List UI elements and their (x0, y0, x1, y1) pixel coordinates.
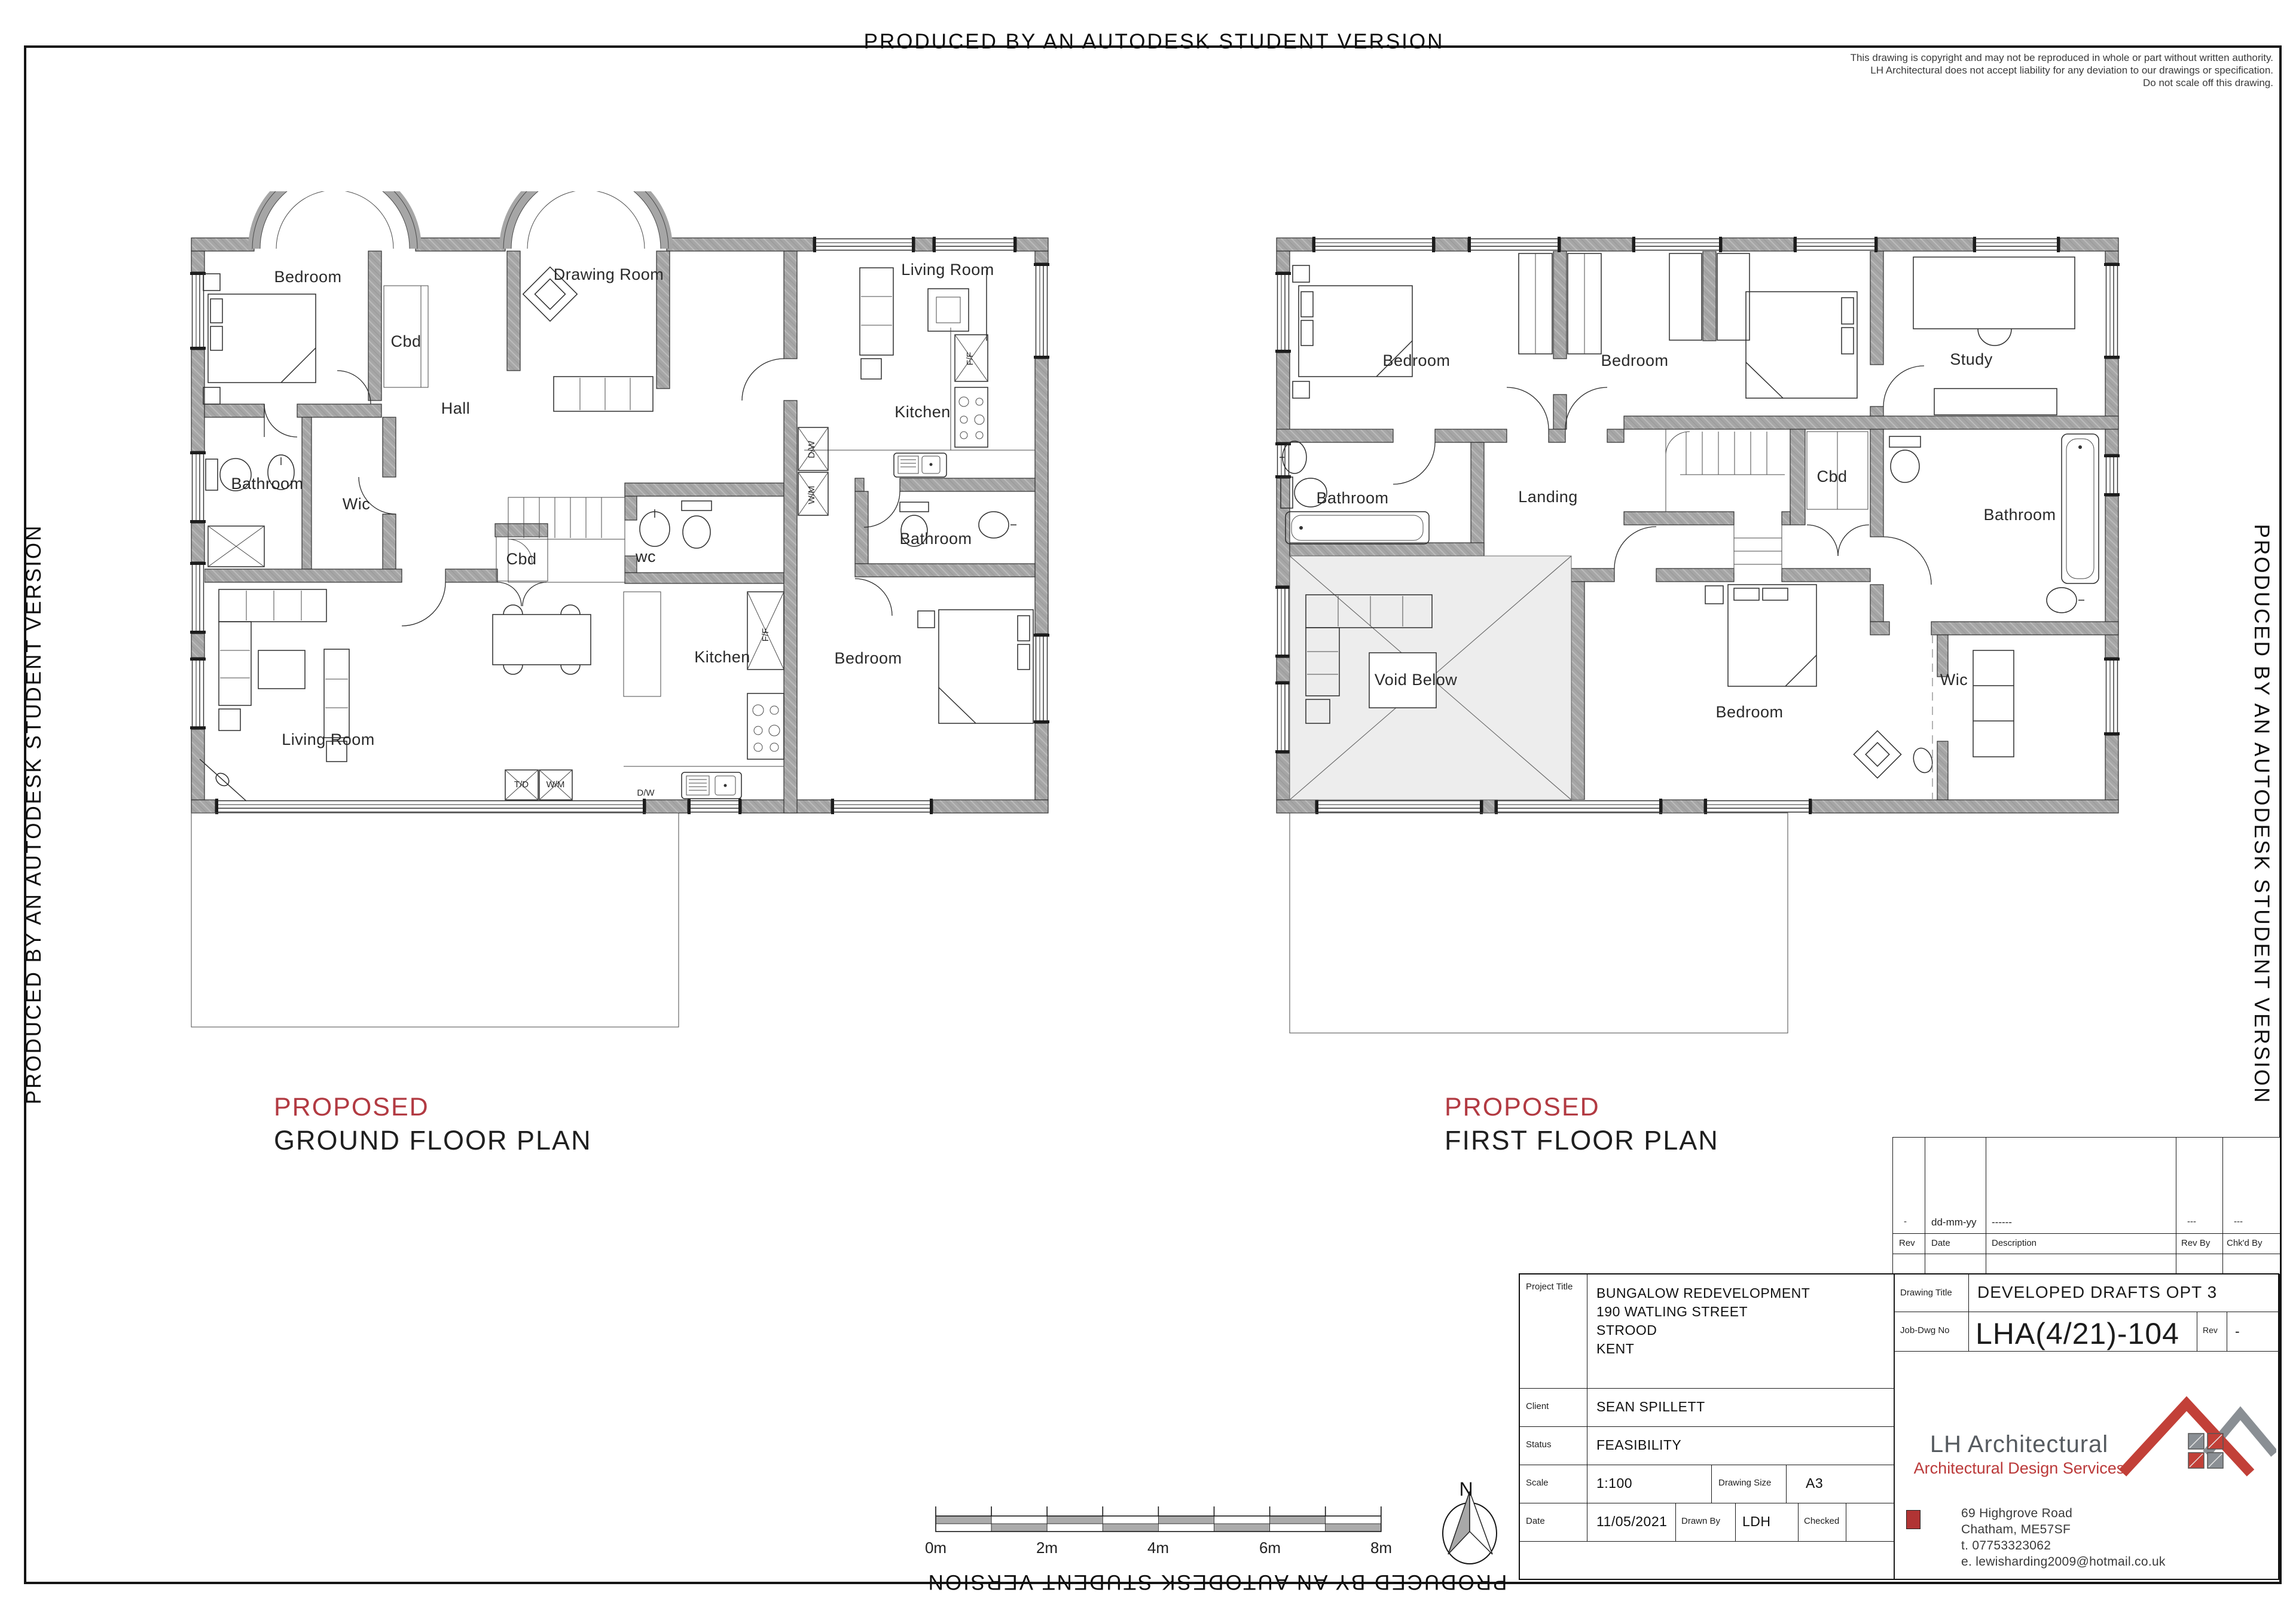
checked-label: Checked (1804, 1516, 1839, 1526)
title-block: Project Title BUNGALOW REDEVELOPMENT 190… (1519, 1273, 2279, 1580)
rev-entry-date: dd-mm-yy (1931, 1217, 1977, 1228)
ground-patio-outline (191, 813, 679, 1027)
first-terrace-outline (1290, 813, 1788, 1033)
drawing-title-value: DEVELOPED DRAFTS OPT 3 (1977, 1283, 2217, 1302)
appliance-label-dw: D/W (807, 441, 817, 459)
appliance-label-ff: F/F (965, 352, 975, 366)
scale-label-4m: 4m (1147, 1539, 1169, 1557)
company-address-line: Chatham, ME57SF (1961, 1521, 2166, 1538)
company-logo-roof-icon (2118, 1394, 2276, 1493)
room-label-bathroom: Bathroom (1316, 489, 1388, 507)
ground-walls (191, 238, 1048, 813)
room-label-living-room: Living Room (282, 730, 375, 748)
first-floor-plan-drawing: Bedroom Bedroom Study Bathroom Landing C… (1256, 191, 2152, 1040)
bay-window-arch (252, 191, 417, 249)
address-bullet (1906, 1510, 1921, 1529)
rev-value: - (2235, 1324, 2240, 1340)
room-label-wc: wc (635, 548, 656, 566)
drawing-title-label: Drawing Title (1900, 1288, 1952, 1298)
room-label-bathroom: Bathroom (231, 475, 303, 493)
rev-header-description: Description (1992, 1238, 2037, 1248)
room-label-bedroom: Bedroom (1601, 352, 1668, 369)
room-label-void-below: Void Below (1375, 671, 1458, 689)
autodesk-banner-top: PRODUCED BY AN AUTODESK STUDENT VERSION (843, 30, 1465, 54)
date-label: Date (1526, 1516, 1545, 1526)
rev-header-date: Date (1931, 1238, 1950, 1248)
room-label-bedroom: Bedroom (274, 268, 341, 286)
room-label-hall: Hall (441, 399, 471, 417)
rev-header-chkd-by: Chk'd By (2227, 1238, 2263, 1248)
rev-header-rev-by: Rev By (2181, 1238, 2210, 1248)
disclaimer-line: LH Architectural does not accept liabili… (1782, 64, 2273, 77)
north-arrow: N (1443, 1478, 1497, 1564)
client-value: SEAN SPILLETT (1596, 1399, 1705, 1415)
room-label-bedroom: Bedroom (1382, 352, 1450, 369)
ground-plan-caption: PROPOSED GROUND FLOOR PLAN (274, 1092, 592, 1157)
proposed-tag: PROPOSED (274, 1092, 592, 1124)
room-label-bedroom: Bedroom (1715, 703, 1783, 721)
north-label: N (1459, 1478, 1473, 1500)
disclaimer-line: Do not scale off this drawing. (1782, 77, 2273, 89)
autodesk-banner-bottom: PRODUCED BY AN AUTODESK STUDENT VERSION (906, 1570, 1528, 1594)
ground-windows (190, 237, 1049, 814)
rev-entry-chkd-by: --- (2234, 1217, 2243, 1227)
proposed-tag: PROPOSED (1445, 1092, 1719, 1124)
room-label-drawing-room: Drawing Room (554, 265, 664, 283)
room-label-kitchen: Kitchen (694, 648, 750, 666)
appliance-label-ff: F/F (761, 628, 771, 642)
scale-label: Scale (1526, 1478, 1549, 1488)
appliance-label-td: T/D (514, 780, 529, 790)
room-label-wic: Wic (343, 495, 370, 513)
job-dwg-no-label: Job-Dwg No (1900, 1325, 1950, 1335)
disclaimer-line: This drawing is copyright and may not be… (1782, 51, 2273, 64)
room-label-study: Study (1950, 350, 1993, 368)
job-dwg-no-value: LHA(4/21)-104 (1976, 1316, 2179, 1351)
room-label-annexe-bedroom: Bedroom (834, 649, 902, 667)
company-address-line: 69 Highgrove Road (1961, 1505, 2166, 1521)
company-tagline: Architectural Design Services (1903, 1459, 2136, 1478)
room-label-bathroom: Bathroom (1983, 506, 2056, 524)
drawing-size-label: Drawing Size (1718, 1478, 1771, 1488)
drawn-by-label: Drawn By (1681, 1516, 1720, 1526)
project-title-line: BUNGALOW REDEVELOPMENT (1596, 1284, 1810, 1303)
first-plan-caption: PROPOSED FIRST FLOOR PLAN (1445, 1092, 1719, 1157)
company-address-line: e. lewisharding2009@hotmail.co.uk (1961, 1554, 2166, 1570)
plan-title: FIRST FLOOR PLAN (1445, 1124, 1719, 1157)
autodesk-banner-right: PRODUCED BY AN AUTODESK STUDENT VERSION (2249, 503, 2273, 1125)
rev-entry-description: ------ (1992, 1217, 2012, 1228)
scale-label-8m: 8m (1370, 1539, 1392, 1557)
scale-label-6m: 6m (1259, 1539, 1281, 1557)
client-label: Client (1526, 1401, 1549, 1411)
room-label-cbd: Cbd (390, 332, 421, 350)
status-label: Status (1526, 1439, 1552, 1450)
appliance-label-wm: W/M (546, 780, 565, 790)
project-title-line: 190 WATLING STREET (1596, 1303, 1810, 1321)
drawn-by-value: LDH (1742, 1514, 1771, 1530)
project-title-line: STROOD (1596, 1321, 1810, 1340)
rev-header-rev: Rev (1899, 1238, 1915, 1248)
room-label-cbd: Cbd (506, 550, 536, 568)
date-value: 11/05/2021 (1596, 1514, 1667, 1530)
project-title-line: KENT (1596, 1340, 1810, 1358)
room-label-landing: Landing (1518, 488, 1578, 506)
status-value: FEASIBILITY (1596, 1437, 1681, 1453)
revision-table: - dd-mm-yy ------ --- --- Rev Date Descr… (1892, 1137, 2280, 1274)
appliance-label-wm: W/M (807, 486, 817, 505)
scale-label-2m: 2m (1036, 1539, 1058, 1557)
project-title-label: Project Title (1526, 1282, 1573, 1292)
ground-floor-plan-drawing: Bedroom Cbd Drawing Room Hall Bathroom W… (167, 191, 1100, 1040)
scale-bar (936, 1506, 1381, 1532)
bay-window-arch (503, 191, 668, 249)
copyright-disclaimer: This drawing is copyright and may not be… (1782, 51, 2273, 89)
plan-title: GROUND FLOOR PLAN (274, 1124, 592, 1157)
autodesk-banner-left: PRODUCED BY AN AUTODESK STUDENT VERSION (22, 503, 46, 1125)
appliance-label-dw: D/W (637, 788, 655, 798)
scale-label-0m: 0m (925, 1539, 947, 1557)
rev-label: Rev (2203, 1325, 2218, 1335)
company-name: LH Architectural (1903, 1431, 2136, 1458)
room-label-cbd: Cbd (1816, 467, 1847, 485)
scale-bar-and-north-arrow: 0m 2m 4m 6m 8m N (921, 1447, 1537, 1572)
room-label-annexe-bathroom: Bathroom (899, 530, 972, 548)
company-address-line: t. 07753323062 (1961, 1538, 2166, 1554)
room-label-annexe-living: Living Room (901, 261, 994, 279)
drawing-size-value: A3 (1806, 1475, 1823, 1491)
room-label-wic: Wic (1940, 671, 1968, 689)
drawing-sheet: PRODUCED BY AN AUTODESK STUDENT VERSION … (0, 0, 2296, 1623)
scale-value: 1:100 (1596, 1475, 1632, 1491)
rev-entry-rev-by: --- (2187, 1217, 2196, 1227)
room-label-annexe-kitchen: Kitchen (894, 403, 951, 421)
rev-entry-rev: - (1904, 1217, 1907, 1227)
